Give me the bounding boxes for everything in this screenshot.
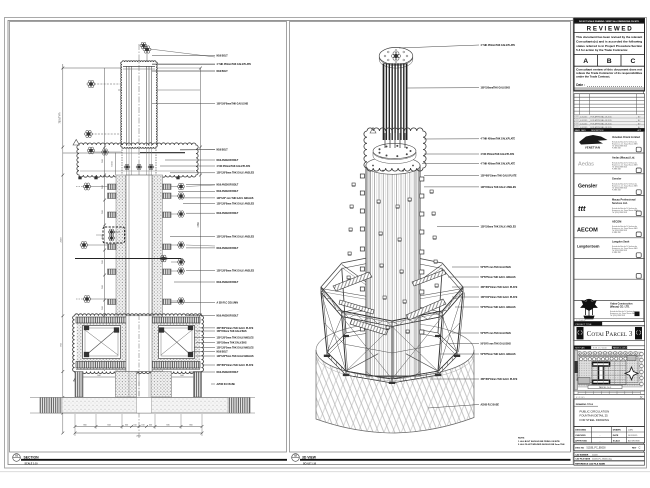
svg-text:NOTE:: NOTE: — [518, 438, 525, 440]
svg-text:AECOM: AECOM — [612, 220, 621, 223]
svg-text:LUHJ: LUHJ — [628, 430, 633, 432]
svg-text:14/1/2015: 14/1/2015 — [628, 435, 638, 437]
svg-text:50*50*5 mm THK GALV.SHS: 50*50*5 mm THK GALV.SHS — [481, 266, 512, 269]
svg-text:R E V I E W E D: R E V I E W E D — [587, 25, 633, 32]
svg-text:M16 ANCHOR BOLT: M16 ANCHOR BOLT — [217, 314, 239, 317]
svg-text:Gensler: Gensler — [612, 178, 621, 181]
svg-text:DWG NO: DWG NO — [575, 448, 584, 450]
svg-text:5102B_PC_B5000.dwg: 5102B_PC_B5000.dwg — [592, 459, 612, 461]
svg-text:120*120*5mm THK GALV.ANGLES: 120*120*5mm THK GALV.ANGLES — [217, 336, 254, 339]
svg-text:M16 ANCHOR BOLT: M16 ANCHOR BOLT — [217, 190, 239, 193]
svg-text:A2500 R.C BASE: A2500 R.C BASE — [481, 403, 500, 406]
svg-text:750 (TYP): 750 (TYP) — [59, 112, 62, 123]
svg-text:5102B_PC_B5000: 5102B_PC_B5000 — [587, 448, 607, 450]
svg-text:M16 BOLT: M16 BOLT — [217, 55, 229, 57]
svg-text:5102B: 5102B — [592, 454, 598, 456]
svg-text:Tel: (853) 2888 3300: Tel: (853) 2888 3300 — [612, 167, 627, 169]
svg-text:450*450*10mm THK GALV. PLATE: 450*450*10mm THK GALV. PLATE — [217, 364, 254, 367]
svg-text:VENETIAN: VENETIAN — [585, 145, 600, 149]
svg-text:Langdon Seah: Langdon Seah — [612, 240, 630, 243]
svg-text:150*150*10mm THK GALV. PLATE: 150*150*10mm THK GALV. PLATE — [481, 296, 518, 299]
svg-text:CAD NUMBER: CAD NUMBER — [575, 453, 589, 456]
svg-text:DRAWING TITLE: DRAWING TITLE — [576, 403, 594, 406]
svg-text:under the Trade Contract.: under the Trade Contract. — [576, 76, 610, 79]
svg-text:F 2888 3317: F 2888 3317 — [612, 252, 621, 254]
svg-text:M16 ANCHOR BOLT: M16 ANCHOR BOLT — [217, 212, 239, 215]
svg-text:F 2888 3317: F 2888 3317 — [612, 148, 621, 150]
svg-text:M16 BOLT: M16 BOLT — [217, 351, 229, 353]
svg-text:M16 ANCHOR BOLT: M16 ANCHOR BOLT — [217, 281, 239, 284]
svg-text:120*150mm THK GALV. ANGLES: 120*150mm THK GALV. ANGLES — [481, 226, 517, 229]
svg-text:CAD FILE NAME: CAD FILE NAME — [575, 458, 591, 461]
svg-text:Aedas: Aedas — [578, 162, 594, 168]
svg-text:1. ALL BOLT SHOULD BE FIXING O: 1. ALL BOLT SHOULD BE FIXING ON SITE. — [518, 440, 561, 443]
svg-text:450*450*10mm THK GALV. PLATE: 450*450*10mm THK GALV. PLATE — [217, 327, 254, 330]
svg-text:DO NOT SCALE DRAWING. VERIFY A: DO NOT SCALE DRAWING. VERIFY ALL DIMENSI… — [579, 20, 640, 23]
svg-text:M16 ANCHOR BOLT: M16 ANCHOR BOLT — [217, 159, 239, 162]
svg-text:4 THK 450mmTHK GALV.PLATE: 4 THK 450mmTHK GALV.PLATE — [481, 44, 516, 47]
svg-text:50*50*5mm THK GALV. ANGLES: 50*50*5mm THK GALV. ANGLES — [481, 306, 516, 309]
svg-text:AECOM: AECOM — [577, 228, 598, 234]
svg-text:50*50*5 mm THK GALV.SHS: 50*50*5 mm THK GALV.SHS — [481, 332, 512, 335]
svg-text:LangdonSeah: LangdonSeah — [577, 245, 599, 249]
svg-text:M16 BOLT: M16 BOLT — [217, 71, 229, 73]
svg-text:C: C — [639, 446, 641, 450]
svg-text:AS SHOWN: AS SHOWN — [628, 439, 640, 442]
svg-text:FOR STEEL DRAWING: FOR STEEL DRAWING — [580, 418, 610, 422]
svg-text:M16 ANCHOR BOLT: M16 ANCHOR BOLT — [217, 184, 239, 187]
svg-text:150*150mm THK GALV.SHS: 150*150mm THK GALV.SHS — [217, 330, 247, 333]
svg-text:FOR APPROVAL 4.8.2015: FOR APPROVAL 4.8.2015 — [591, 122, 612, 125]
svg-text:REFERENCE CAD FILE NAME: REFERENCE CAD FILE NAME — [575, 462, 605, 465]
svg-text:F 2888 3317: F 2888 3317 — [612, 169, 621, 171]
svg-text:M16 ANCHOR BOLT: M16 ANCHOR BOLT — [217, 247, 239, 250]
svg-text:SCALE 1:10: SCALE 1:10 — [303, 462, 317, 465]
svg-text:ttt: ttt — [578, 204, 586, 213]
svg-text:APPROVED: APPROVED — [575, 439, 587, 442]
svg-text:SECTION: SECTION — [24, 455, 40, 459]
svg-text:Date :: Date : — [576, 83, 585, 87]
svg-text:DRAWN: DRAWN — [613, 429, 621, 432]
svg-text:Tel: (853) 2888 3300: Tel: (853) 2888 3300 — [612, 212, 627, 214]
svg-text:2500: 2500 — [60, 237, 62, 243]
svg-text:3D VIEW: 3D VIEW — [302, 455, 317, 459]
svg-text:4 500 450mmTHK GALV.PLATE: 4 500 450mmTHK GALV.PLATE — [481, 153, 515, 156]
svg-text:Gensler: Gensler — [578, 184, 597, 190]
svg-text:50*50*5 mm THK GALV.SHS: 50*50*5 mm THK GALV.SHS — [481, 342, 512, 345]
svg-text:120*450*10mm THK GALV.PLATE: 120*450*10mm THK GALV.PLATE — [481, 174, 518, 177]
svg-text:4 500 450mmTHK GALV.PLATE: 4 500 450mmTHK GALV.PLATE — [217, 165, 251, 168]
svg-text:50*50*5mm THK GALV. ANGLES: 50*50*5mm THK GALV. ANGLES — [481, 353, 516, 356]
svg-text:8 150: 8 150 — [112, 161, 114, 167]
svg-text:B: B — [607, 58, 612, 65]
svg-text:CHECKED: CHECKED — [575, 435, 586, 437]
svg-text:Venetian Orient Limited: Venetian Orient Limited — [612, 136, 640, 139]
svg-text:M16 ANCHOR BOLT: M16 ANCHOR BOLT — [217, 371, 239, 374]
svg-text:Tel: (853) 2888 3300: Tel: (853) 2888 3300 — [612, 188, 627, 190]
svg-text:120*120*8mm THK GALV. ANGLES: 120*120*8mm THK GALV. ANGLES — [217, 202, 255, 205]
svg-text:5.4 for action by the Trade Co: 5.4 for action by the Trade Contractor. — [576, 48, 628, 52]
svg-text:Consultants(s) and is accorded: Consultants(s) and is accorded the follo… — [576, 39, 643, 43]
svg-text:Tel: (853) 2888 3300: Tel: (853) 2888 3300 — [612, 146, 627, 148]
svg-text:status referred to in Project: status referred to in Project Procedure … — [576, 44, 643, 48]
svg-text:relieve the Trade Contractor o: relieve the Trade Contractor of its resp… — [576, 72, 643, 75]
svg-text:120*120* mm THK GALV. ANGLES: 120*120* mm THK GALV. ANGLES — [217, 197, 254, 200]
svg-text:4 THK 450mmTHK GALV.PLATE: 4 THK 450mmTHK GALV.PLATE — [481, 162, 516, 165]
svg-text:Tel: (853) 2888 3300: Tel: (853) 2888 3300 — [612, 250, 627, 252]
svg-text:PARCEL 2 & 3: PARCEL 2 & 3 — [599, 386, 611, 389]
svg-text:150*150mm THK GALV.SHS: 150*150mm THK GALV.SHS — [217, 341, 247, 344]
svg-text:Tel: (853) 2888 3300: Tel: (853) 2888 3300 — [610, 315, 625, 317]
svg-text:F 2888 3317: F 2888 3317 — [612, 232, 621, 234]
svg-text:120*120*5mm THK GALV.ANGLES: 120*120*5mm THK GALV.ANGLES — [217, 355, 254, 358]
svg-text:0 1 2 3 4 5: 0 1 2 3 4 5 — [576, 397, 585, 399]
svg-text:C: C — [630, 58, 635, 65]
svg-text:120*120*8mm THK GALV. ANGLES: 120*120*8mm THK GALV. ANGLES — [217, 172, 255, 175]
svg-text:4 THK 450mmTHK GALV.PLATE: 4 THK 450mmTHK GALV.PLATE — [217, 63, 252, 66]
svg-text:SCALE: SCALE — [613, 439, 621, 442]
svg-text:REV: REV — [632, 448, 637, 450]
svg-text:4 THK 450mmTHK GALV.PLATE: 4 THK 450mmTHK GALV.PLATE — [481, 138, 516, 141]
svg-text:FOR APPROVAL 4.8.2015: FOR APPROVAL 4.8.2015 — [591, 119, 612, 122]
svg-text:150*150*8mmTHK GALV.SHS: 150*150*8mmTHK GALV.SHS — [217, 103, 249, 106]
svg-text:450*450*10mm THK GALV. PLATE: 450*450*10mm THK GALV. PLATE — [481, 286, 518, 289]
svg-text:F 2888 3317: F 2888 3317 — [612, 190, 621, 192]
svg-text:150*150mmTHK GALV.SHS: 150*150mmTHK GALV.SHS — [481, 87, 511, 90]
svg-text:Aedas (Macau) Ltd.: Aedas (Macau) Ltd. — [612, 157, 635, 160]
svg-text:DESIGNED: DESIGNED — [575, 430, 586, 432]
svg-text:4.8.2015: 4.8.2015 — [580, 123, 587, 125]
svg-text:Tel: (853) 2888 3300: Tel: (853) 2888 3300 — [612, 230, 627, 232]
svg-text:This document has been revised: This document has been revised by the re… — [576, 35, 642, 39]
svg-text:FOR APPROVAL 4.8.2015: FOR APPROVAL 4.8.2015 — [591, 115, 612, 118]
svg-text:2. ALL FILLET WELDED SHOULD BE: 2. ALL FILLET WELDED SHOULD BE 3mm THK. — [518, 443, 566, 446]
svg-text:DATE: DATE — [613, 434, 619, 437]
svg-text:120*120*8mm THK GALV. ANGLES: 120*120*8mm THK GALV. ANGLES — [217, 235, 255, 238]
svg-text:4.8.2015: 4.8.2015 — [580, 120, 587, 122]
svg-text:120*150mm THK GALV. ANGLES: 120*150mm THK GALV. ANGLES — [481, 186, 517, 189]
svg-text:Consultant review of this docu: Consultant review of this document does … — [576, 69, 642, 72]
svg-text:PARCEL 1, LOT 1: PARCEL 1, LOT 1 — [576, 364, 579, 381]
svg-text:A2500 R.C BASE: A2500 R.C BASE — [217, 383, 236, 386]
svg-text:(Macau) CO. LTD.: (Macau) CO. LTD. — [610, 306, 630, 309]
svg-text:A 350 R.C COLUMN: A 350 R.C COLUMN — [217, 301, 239, 304]
svg-text:50*50*5mm THK GALV. ANGLES: 50*50*5mm THK GALV. ANGLES — [481, 276, 516, 279]
svg-text:Services Ltd.: Services Ltd. — [612, 202, 628, 205]
svg-text:120*120*5mm THK GALV.ANGLES: 120*120*5mm THK GALV.ANGLES — [217, 346, 254, 349]
svg-text:1788: 1788 — [197, 222, 200, 228]
svg-text:SCALE 1:10: SCALE 1:10 — [25, 462, 39, 465]
svg-text:120*120*8mm THK GALV. ANGLES: 120*120*8mm THK GALV. ANGLES — [217, 269, 255, 272]
svg-text:COTAI PARCEL 3: COTAI PARCEL 3 — [587, 330, 633, 338]
svg-text:4.8.2015: 4.8.2015 — [580, 116, 587, 118]
svg-text:A: A — [583, 58, 588, 65]
svg-text:M16 BOLT: M16 BOLT — [217, 150, 229, 152]
svg-text:450*450*10mm THK GALV. PLATE: 450*450*10mm THK GALV. PLATE — [481, 378, 518, 381]
